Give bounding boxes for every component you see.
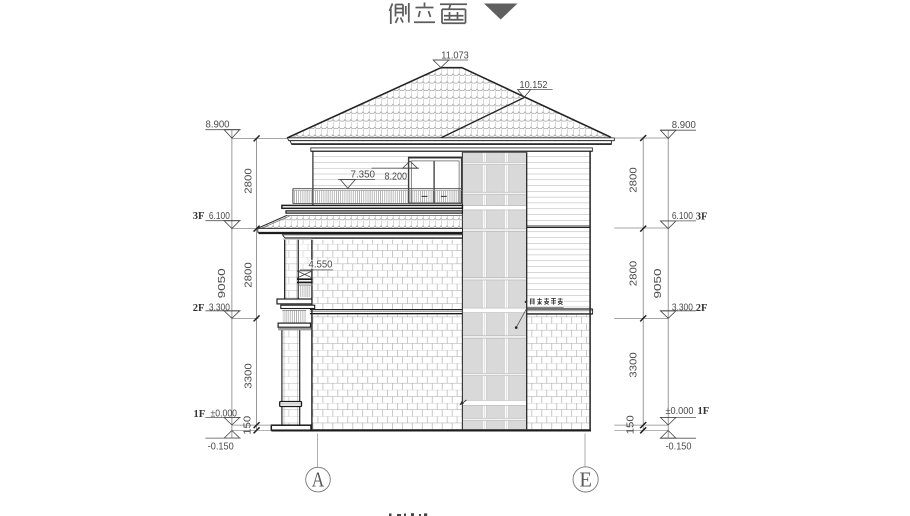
svg-text:±0.000: ±0.000 (666, 406, 694, 417)
svg-text:2800: 2800 (629, 260, 640, 286)
svg-text:9050: 9050 (217, 268, 228, 298)
svg-text:8.900: 8.900 (206, 119, 230, 130)
svg-text:2F: 2F (193, 303, 205, 314)
svg-text:1F: 1F (698, 406, 710, 417)
svg-text:7.350: 7.350 (351, 170, 376, 181)
svg-text:3300: 3300 (629, 352, 640, 378)
svg-text:2F: 2F (696, 303, 708, 314)
svg-text:E: E (579, 467, 592, 491)
svg-text:3F: 3F (193, 211, 205, 222)
svg-text:1F: 1F (194, 409, 206, 420)
svg-text:3300: 3300 (244, 363, 255, 389)
svg-text:9050: 9050 (653, 268, 664, 298)
svg-text:2800: 2800 (244, 262, 255, 288)
svg-text:2800: 2800 (244, 168, 255, 194)
svg-text:3.300: 3.300 (209, 303, 230, 314)
svg-text:±0.000: ±0.000 (211, 409, 238, 420)
svg-text:8.200: 8.200 (385, 172, 408, 183)
svg-text:4.550: 4.550 (309, 260, 333, 271)
svg-text:-0.150: -0.150 (208, 442, 234, 453)
svg-text:6.100: 6.100 (672, 211, 693, 222)
svg-text:150: 150 (243, 415, 254, 434)
svg-text:3F: 3F (696, 212, 708, 223)
svg-text:2800: 2800 (629, 167, 640, 193)
svg-text:8.900: 8.900 (672, 120, 696, 131)
svg-text:150: 150 (626, 415, 637, 434)
svg-text:A: A (312, 468, 325, 492)
svg-text:-0.150: -0.150 (666, 441, 692, 452)
